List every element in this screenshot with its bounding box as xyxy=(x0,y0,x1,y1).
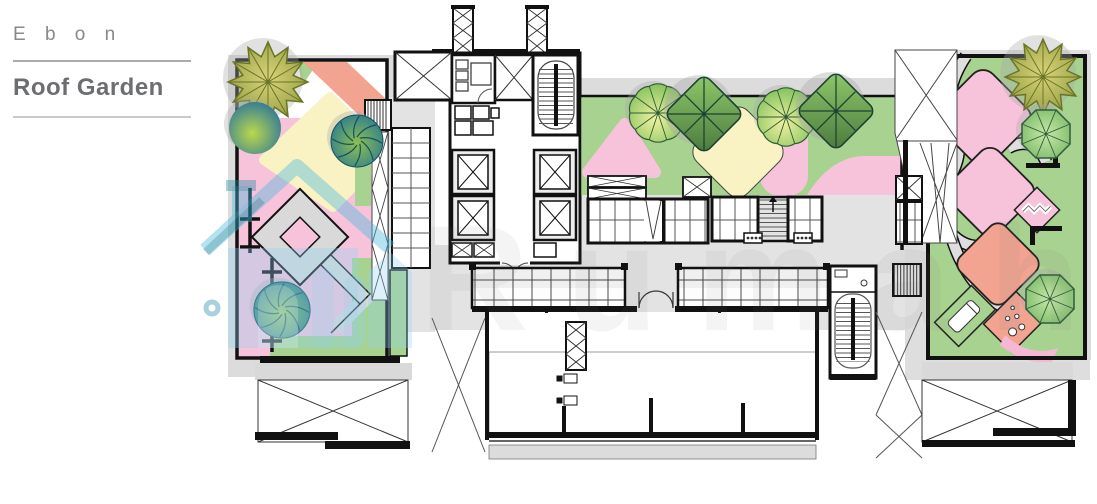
roof-garden-plan: Rumah xyxy=(0,0,1097,504)
roof-shaft xyxy=(451,5,549,54)
terrace-edge-band xyxy=(489,445,816,459)
page: E b o n Roof Garden xyxy=(0,0,1097,504)
core-rooms xyxy=(455,106,499,135)
elevator xyxy=(534,150,576,194)
watermark: Rumah xyxy=(205,166,1097,362)
elevator xyxy=(452,150,494,194)
watermark-text: Rumah xyxy=(420,194,1097,362)
core-stair xyxy=(533,55,578,135)
